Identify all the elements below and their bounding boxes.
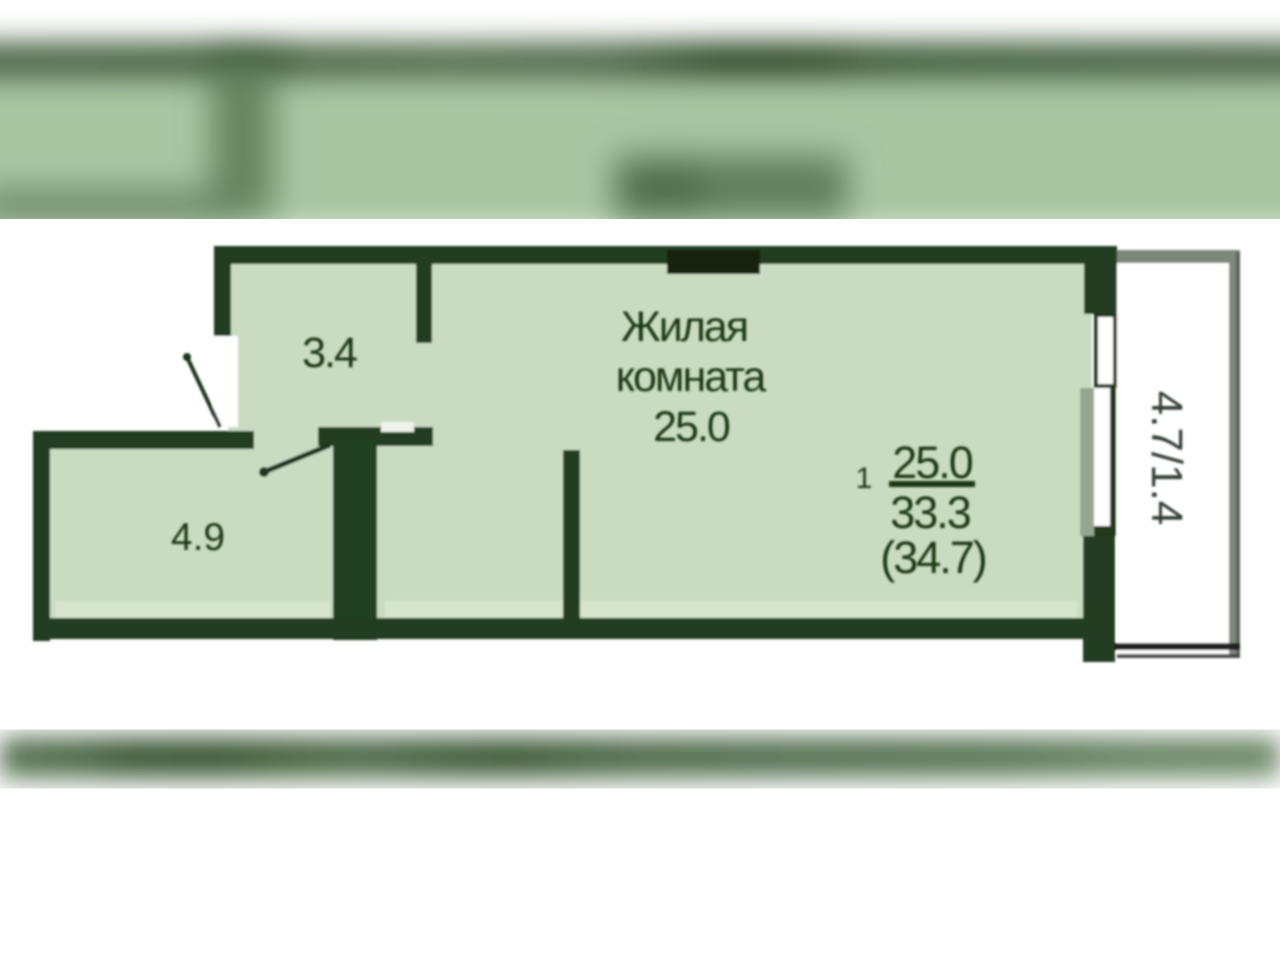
svg-text:4.7/1.4: 4.7/1.4	[1142, 391, 1191, 526]
svg-text:25.0: 25.0	[653, 403, 730, 451]
svg-text:3.4: 3.4	[302, 329, 357, 377]
svg-text:25.0: 25.0	[892, 437, 973, 488]
svg-text:33.3: 33.3	[890, 487, 971, 538]
svg-text:комната: комната	[616, 353, 767, 401]
svg-text:4.9: 4.9	[171, 516, 225, 559]
svg-text:(34.7): (34.7)	[880, 532, 986, 583]
svg-text:Жилая: Жилая	[621, 303, 747, 351]
svg-text:1: 1	[856, 462, 873, 495]
